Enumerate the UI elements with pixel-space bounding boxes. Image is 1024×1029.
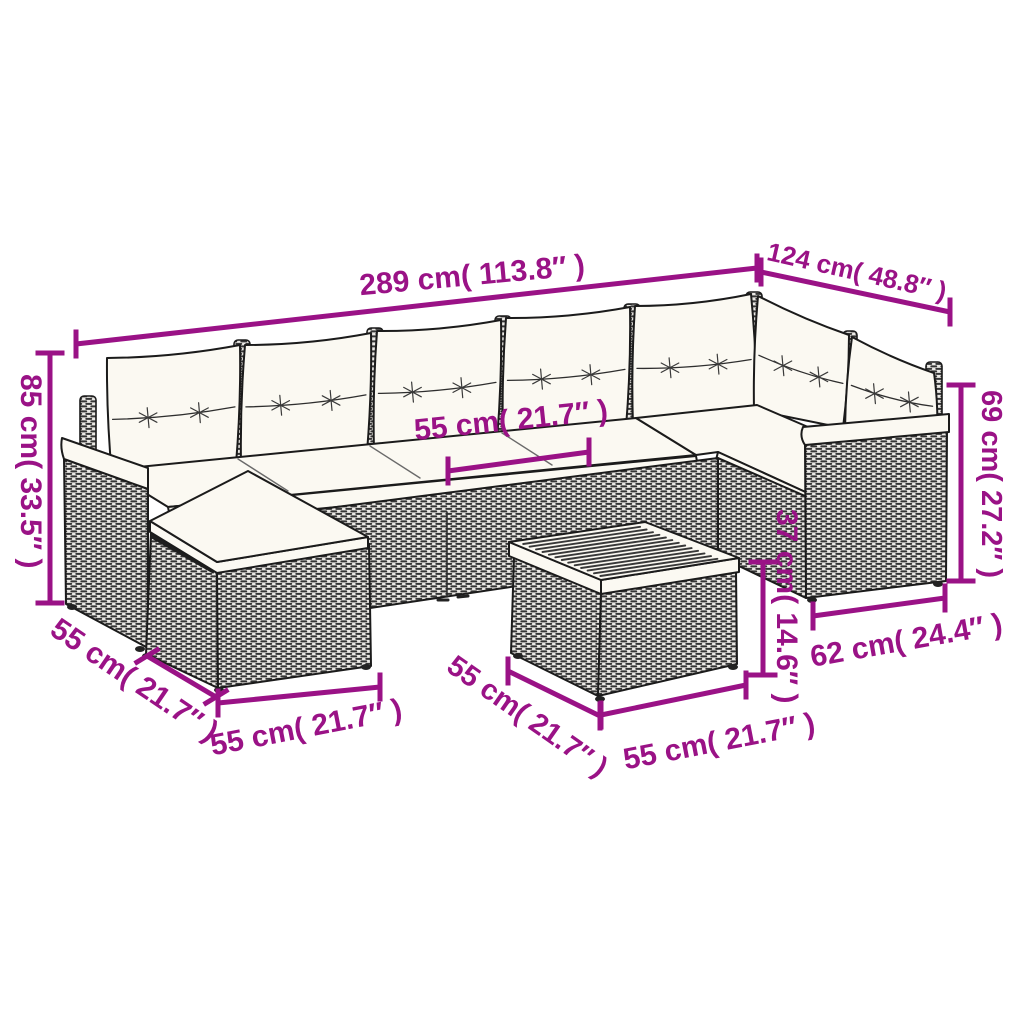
svg-text:55 cm( 21.7″ ): 55 cm( 21.7″ ) <box>621 707 818 777</box>
svg-text:289 cm( 113.8″ ): 289 cm( 113.8″ ) <box>358 249 586 302</box>
svg-text:62 cm( 24.4″ ): 62 cm( 24.4″ ) <box>808 608 1005 674</box>
svg-text:69 cm( 27.2″ ): 69 cm( 27.2″ ) <box>975 390 1007 578</box>
svg-text:124 cm( 48.8″ ): 124 cm( 48.8″ ) <box>764 236 949 306</box>
svg-text:85 cm( 33.5″ ): 85 cm( 33.5″ ) <box>14 374 47 568</box>
svg-text:37 cm( 14.6″ ): 37 cm( 14.6″ ) <box>770 509 803 703</box>
